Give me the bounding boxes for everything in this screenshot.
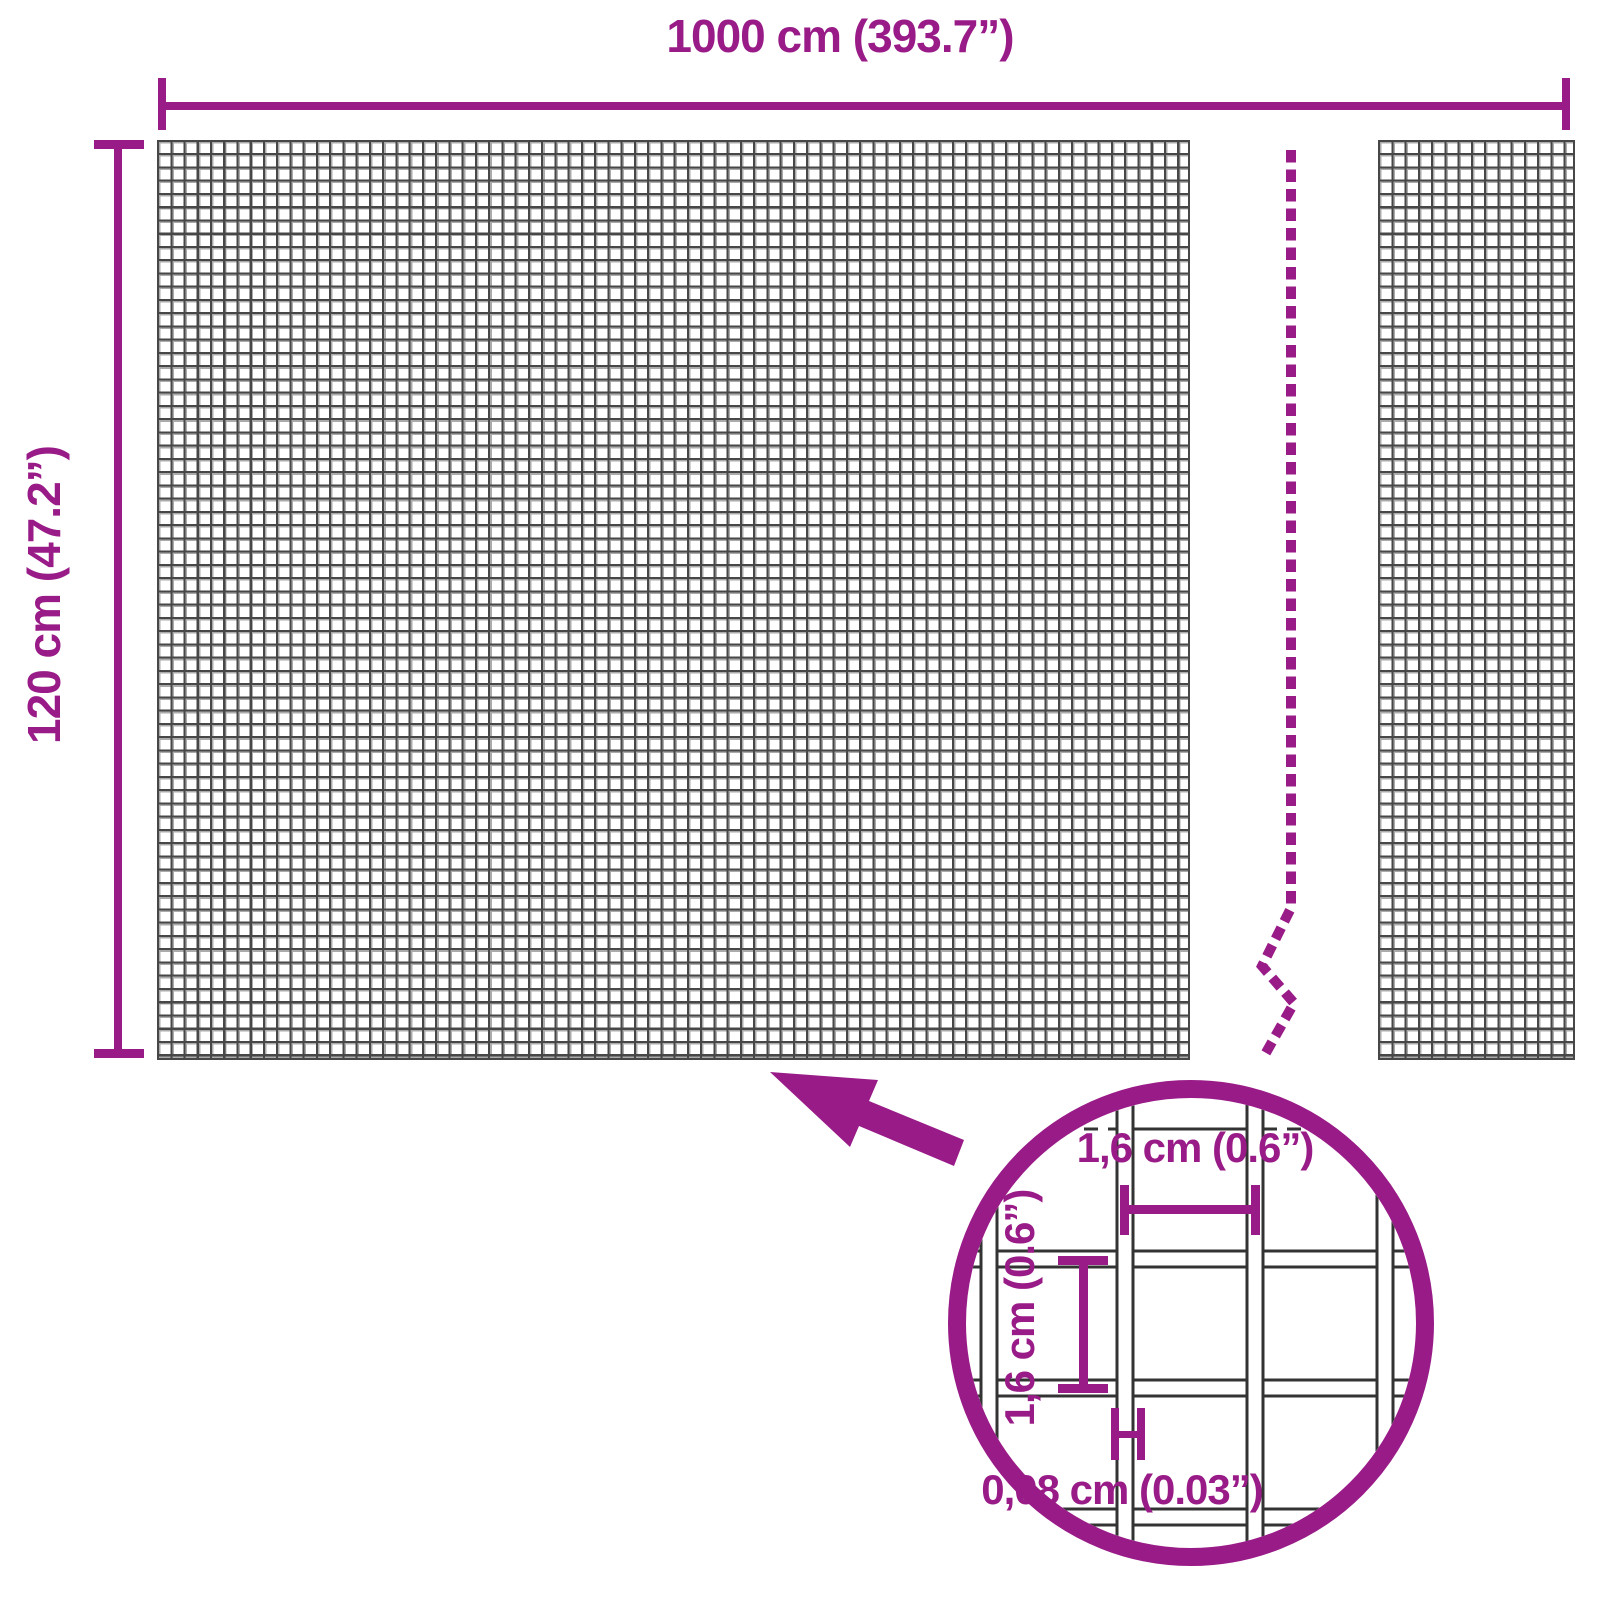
diagram-overlay	[0, 0, 1600, 1600]
detail-width-label: 1,6 cm (0.6”)	[995, 1123, 1395, 1173]
product-dimension-diagram: 1000 cm (393.7”) 120 cm (47.2”)	[0, 0, 1600, 1600]
detail-height-label: 1,6 cm (0.6”)	[995, 1138, 1045, 1478]
panel-break-dashed-line	[1262, 150, 1294, 1058]
zoom-arrow-icon	[770, 1072, 964, 1166]
wire-thickness-label: 0,08 cm (0.03”)	[922, 1465, 1322, 1515]
